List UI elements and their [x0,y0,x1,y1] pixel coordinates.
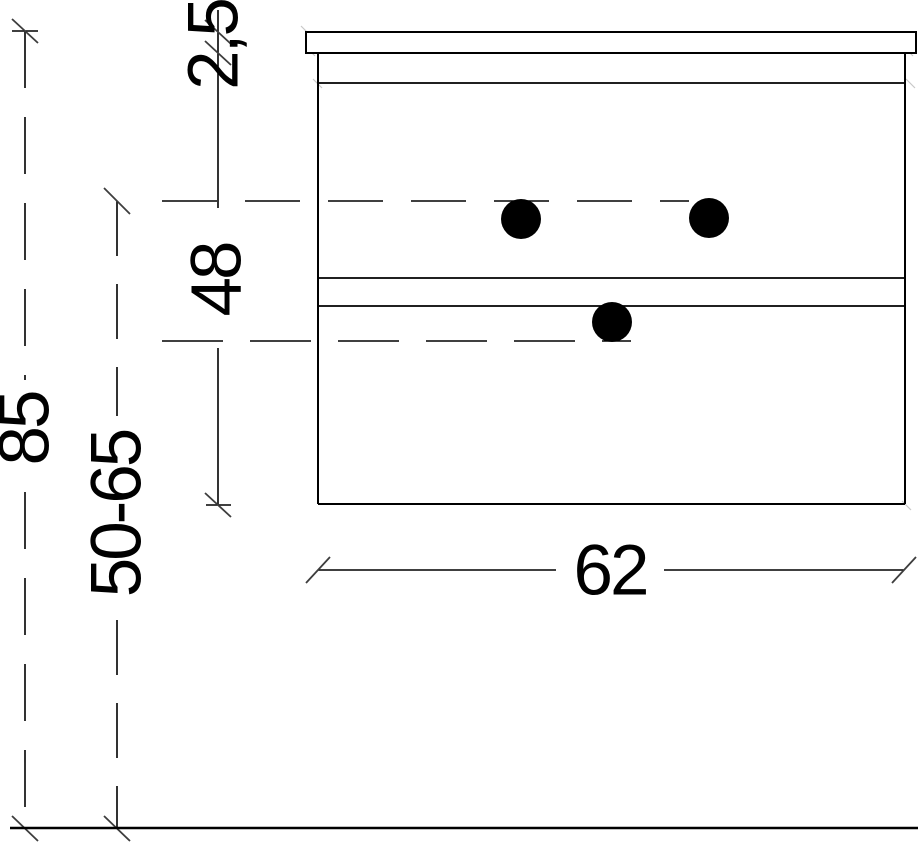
dim-label-overall-height: 85 [0,393,61,466]
dim-label-installation-height-range: 50-65 [82,431,153,598]
dimension-lines-group [12,10,904,828]
knob-top-left [501,199,541,239]
knob-bottom-center [592,302,632,342]
faint-mark [902,501,911,510]
technical-drawing-canvas: 85 50-65 2,5 48 62 [0,0,918,842]
drawer-knobs-group [501,198,729,342]
faint-mark [906,79,915,88]
dim-label-width: 62 [574,536,647,607]
knob-top-right [689,198,729,238]
dim-label-body-height: 48 [182,244,253,317]
countertop-panel [306,32,916,53]
cabinet-outline-group [306,32,916,504]
dim-label-top-thickness: 2,5 [179,0,250,90]
faint-corner-marks-group [301,26,915,510]
drawing-linework [0,0,918,842]
